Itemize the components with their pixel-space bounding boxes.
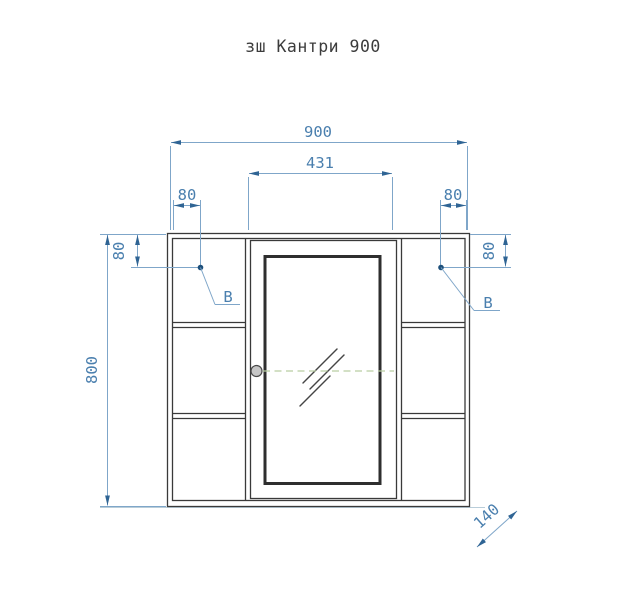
left-shelves (173, 323, 246, 419)
dim-left-top-offset: 80 (174, 186, 201, 267)
dim-value: 80 (110, 242, 128, 261)
drawing-page: зш Кантри 900 (0, 0, 636, 600)
door-handle (251, 366, 262, 377)
leader-line (201, 268, 216, 305)
dim-value: 900 (304, 123, 332, 141)
detail-callout-left: B (198, 265, 240, 306)
mirror-hatch-stroke (303, 349, 337, 383)
dim-right-top-offset: 80 (441, 186, 467, 267)
mirror-hatch (300, 349, 344, 406)
dim-right-side-offset: 80 (441, 235, 511, 268)
dim-value: 80 (480, 242, 498, 261)
dim-value: 431 (306, 154, 334, 172)
dim-overall-width: 900 (171, 123, 468, 230)
cabinet-outer-frame (168, 234, 470, 507)
cabinet-front-view (168, 234, 470, 507)
dim-value: 80 (444, 186, 463, 204)
technical-drawing-canvas: зш Кантри 900 (0, 0, 636, 600)
dim-door-width: 431 (249, 154, 393, 230)
cabinet-door (251, 241, 397, 499)
dim-value: 80 (178, 186, 197, 204)
dim-overall-height: 800 (83, 235, 166, 507)
dim-value: 800 (83, 356, 101, 384)
mirror-hatch-stroke (300, 376, 330, 406)
drawing-title: зш Кантри 900 (245, 37, 381, 56)
right-shelves (402, 323, 466, 419)
detail-label: B (223, 288, 232, 306)
dim-left-side-offset: 80 (110, 235, 200, 268)
mirror-hatch-stroke (310, 355, 344, 389)
mirror-frame (265, 257, 380, 484)
detail-label: B (483, 294, 492, 312)
cabinet-inner-frame (173, 239, 466, 501)
